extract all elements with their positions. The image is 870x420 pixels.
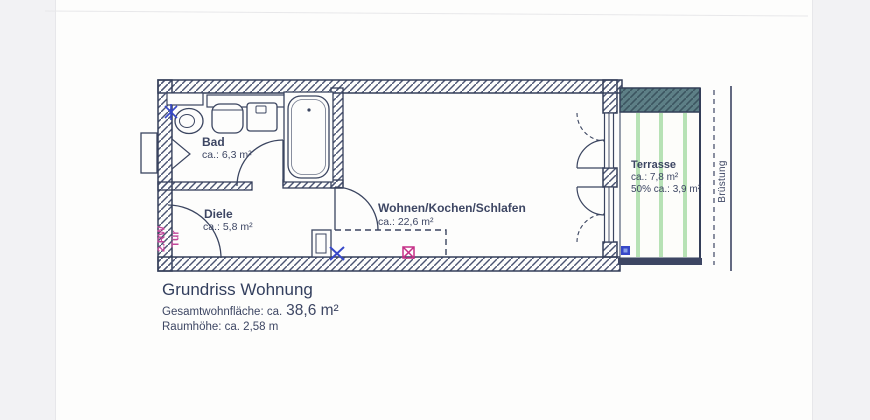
washbasin [212, 104, 243, 133]
bathtub-drain [307, 108, 310, 111]
room-label-terrasse: Terrasse [631, 159, 676, 171]
top-wall [158, 80, 622, 93]
right-wall-pier-bottom [603, 242, 617, 257]
kitchen-niche [312, 230, 446, 257]
french-door-upper-swing-dashed [577, 113, 605, 141]
scanned-floorplan-page: Bad ca.: 6,3 m² Diele ca.: 5,8 m² Wohnen… [0, 0, 870, 420]
french-door-upper-swing [577, 140, 605, 168]
room-area-terrasse-half: 50% ca.: 3,9 m² [631, 184, 701, 195]
right-wall-pier-top [603, 80, 617, 113]
room-area-bad: ca.: 6,3 m² [202, 150, 252, 162]
french-door-upper [577, 113, 614, 168]
blue-square-symbol [621, 246, 630, 255]
door-direction-triangle [172, 139, 190, 169]
total-area-value: 38,6 m² [286, 302, 339, 319]
bathtub [284, 92, 333, 182]
scan-artifact-line [45, 11, 808, 16]
plan-title: Grundriss Wohnung [162, 281, 313, 300]
wohnen-door [335, 187, 378, 230]
bad-diele-wall [158, 182, 252, 190]
total-area-line: Gesamtwohnfläche: ca. 38,6 m² [162, 302, 339, 319]
room-height-line: Raumhöhe: ca. 2,58 m [162, 321, 278, 334]
room-area-terrasse: ca.: 7,8 m² [631, 172, 678, 183]
bad-door [237, 140, 283, 186]
wohnen-door-swing [335, 187, 378, 230]
rw-tuer-line1: 2.RW [156, 217, 170, 262]
bruestung-label: Brüstung [717, 154, 730, 209]
bottom-wall [158, 257, 620, 271]
room-area-wohnen: ca.: 22,6 m² [378, 217, 433, 229]
room-area-diele: ca.: 5,8 m² [203, 222, 253, 234]
room-label-wohnen: Wohnen/Kochen/Schlafen [378, 202, 526, 215]
terrace-parapet-band [620, 88, 700, 112]
total-area-label: Gesamtwohnfläche: ca. [162, 306, 282, 319]
bath-shelf-small [167, 93, 203, 105]
french-door-lower [577, 187, 614, 242]
bath-fixtures [167, 93, 291, 134]
french-door-lower-swing-dashed [577, 214, 605, 242]
second-basin [247, 103, 277, 131]
french-door-lower-swing [577, 187, 605, 215]
terrace-bottom-edge [618, 258, 702, 265]
room-label-bad: Bad [202, 136, 225, 149]
bad-door-swing [237, 140, 283, 186]
right-wall-pier-mid [603, 168, 617, 187]
rw-tuer-line2: Tür [169, 217, 183, 262]
kitchen-niche-outline [335, 230, 446, 257]
room-label-diele: Diele [204, 208, 233, 221]
rw-tuer-note: 2.RW Tür [156, 217, 184, 262]
